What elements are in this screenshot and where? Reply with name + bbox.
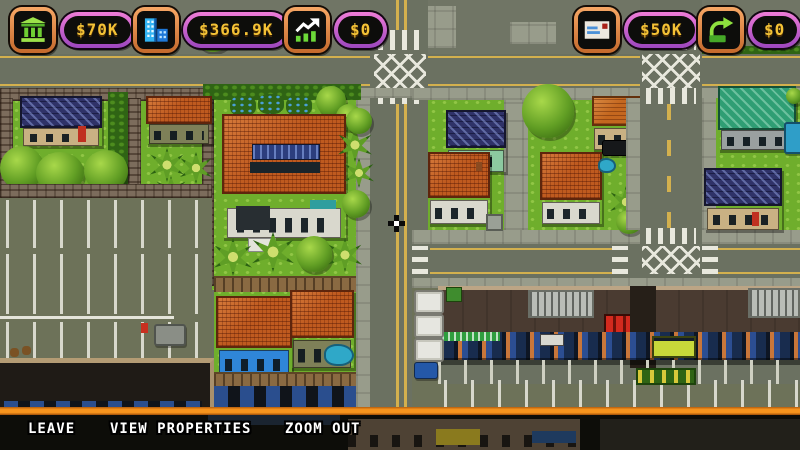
house-solar-roof[interactable] [20, 96, 102, 146]
solar-roof [20, 96, 102, 128]
rooftop-ac-unit [748, 288, 800, 318]
brick-wall [128, 98, 141, 190]
cursor-center-dot [394, 221, 399, 226]
solar-roof [446, 110, 506, 148]
hud-value-pill: $0 [748, 12, 800, 48]
mansion-red-roof[interactable] [222, 114, 346, 238]
dim-awning [532, 431, 576, 443]
parked-car [414, 362, 438, 379]
red-tile-roof [428, 152, 490, 198]
crosswalk [646, 88, 696, 104]
game-screen: $70K $366.9K $0 [0, 0, 800, 450]
pedestrian [10, 348, 19, 357]
parked-car-row [214, 386, 356, 408]
action-bar: LEAVE VIEW PROPERTIES ZOOM OUT [0, 415, 800, 450]
bank-icon-glyph [19, 16, 47, 44]
solar-roof [704, 168, 782, 206]
hud-counter-cash: $70K [10, 7, 135, 53]
hud-value-pill: $0 [334, 12, 387, 48]
hud-value-pill: $50K [624, 12, 699, 48]
parked-truck [414, 290, 444, 314]
red-door [752, 212, 759, 226]
sidewalk [626, 98, 640, 230]
house-red-roof[interactable] [146, 96, 212, 144]
intersection-lattice [642, 54, 700, 88]
pedestrian [141, 323, 148, 333]
house-blue-front[interactable] [216, 296, 292, 376]
menu-separator [0, 407, 800, 415]
road-line [430, 272, 612, 274]
chart-up-icon [284, 7, 330, 53]
house-body [430, 200, 487, 224]
parking-lines [6, 254, 206, 314]
hud-counter-mail-money: $50K [574, 7, 699, 53]
road-line [430, 248, 612, 250]
hud-counter-revenue: $0 [284, 7, 387, 53]
envelope-icon [574, 7, 620, 53]
bank-icon [10, 7, 56, 53]
crosswalk [702, 246, 718, 274]
flower-bush [230, 96, 256, 116]
intersection-lattice [374, 54, 426, 88]
solar-panels [252, 144, 320, 160]
parked-car [154, 324, 186, 346]
tree [346, 108, 372, 134]
flower-bush [258, 94, 284, 114]
envelope-icon-glyph [583, 16, 611, 44]
pedestrian [476, 162, 482, 171]
house-red-roof[interactable] [540, 152, 602, 224]
road-center-line [396, 104, 399, 412]
city-map-viewport[interactable] [0, 0, 800, 450]
flower-bush [286, 96, 312, 116]
tree [786, 88, 800, 104]
hud-counter-transfer: $0 [698, 7, 800, 53]
hud-counter-revenue-value: $0 [338, 16, 383, 44]
planter [636, 368, 696, 385]
dumpster [446, 287, 462, 302]
crosswalk [612, 246, 628, 274]
parked-car [784, 122, 800, 154]
pool [598, 158, 616, 173]
road-line [702, 56, 800, 58]
tree [342, 190, 370, 218]
sidewalk [412, 230, 800, 244]
parking-lines [0, 316, 174, 319]
road-line [718, 248, 800, 250]
red-tile-roof [290, 290, 354, 338]
buildings-icon [133, 7, 179, 53]
utility-box [486, 214, 503, 231]
hud-counter-mail-money-value: $50K [628, 16, 695, 44]
chart-up-icon-inner [288, 11, 326, 49]
house-body [542, 202, 599, 224]
buildings-icon-glyph [142, 16, 170, 44]
garage-door [236, 206, 270, 230]
store-sign [652, 336, 696, 358]
parked-truck [414, 338, 444, 362]
rooftop-ac-unit [528, 290, 594, 318]
green-awning [442, 332, 500, 341]
house-solar-roof[interactable] [704, 168, 782, 230]
crosswalk [412, 246, 428, 274]
road-line [428, 84, 640, 86]
road-line [396, 0, 399, 30]
red-tile-roof [146, 96, 212, 124]
hud-counter-property-value: $366.9K [133, 7, 289, 53]
wallet-arrow-icon-glyph [707, 16, 735, 44]
house-body [707, 208, 779, 230]
hud-value-pill: $366.9K [183, 12, 289, 48]
tree [522, 84, 574, 138]
parking-lines [444, 380, 800, 410]
buildings-icon-inner [137, 11, 175, 49]
window-row [250, 162, 320, 173]
pedestrian [22, 346, 31, 355]
white-awning [540, 334, 564, 346]
red-tile-roof [216, 296, 292, 348]
fence [214, 372, 356, 386]
menu-leave[interactable]: LEAVE [28, 421, 75, 438]
crosswalk [646, 228, 696, 244]
road-line [428, 56, 640, 58]
house-body [149, 124, 210, 144]
house-body [721, 130, 793, 150]
hud-counter-property-value-value: $366.9K [187, 16, 285, 44]
intersection-lattice [642, 246, 700, 274]
backyard-pool [324, 344, 354, 366]
crosshair-cursor [388, 215, 405, 232]
road-center-line [667, 100, 671, 228]
bank-icon-inner [14, 11, 52, 49]
sidewalk-island [510, 22, 556, 44]
road-line [718, 272, 800, 274]
dim-taxi [436, 429, 480, 445]
red-door [78, 126, 86, 142]
parked-truck [414, 314, 444, 338]
red-tile-roof [540, 152, 602, 200]
wallet-arrow-icon-inner [702, 11, 740, 49]
teal-awning [310, 200, 336, 209]
wallet-arrow-icon [698, 7, 744, 53]
hud-value-pill: $70K [60, 12, 135, 48]
hud-counter-cash-value: $70K [64, 16, 131, 44]
brick-wall [0, 184, 212, 198]
house-body [23, 128, 98, 146]
menu-view-properties[interactable]: VIEW PROPERTIES [110, 421, 251, 438]
road-center-line [404, 104, 407, 412]
road-line [0, 56, 372, 58]
dim-building [600, 419, 800, 450]
tree [296, 236, 332, 272]
parking-lines [6, 200, 206, 248]
envelope-icon-inner [578, 11, 616, 49]
road-line [404, 0, 407, 30]
hud-counter-transfer-value: $0 [752, 16, 797, 44]
chart-up-icon-glyph [293, 16, 321, 44]
menu-zoom-out[interactable]: ZOOM OUT [285, 421, 360, 438]
